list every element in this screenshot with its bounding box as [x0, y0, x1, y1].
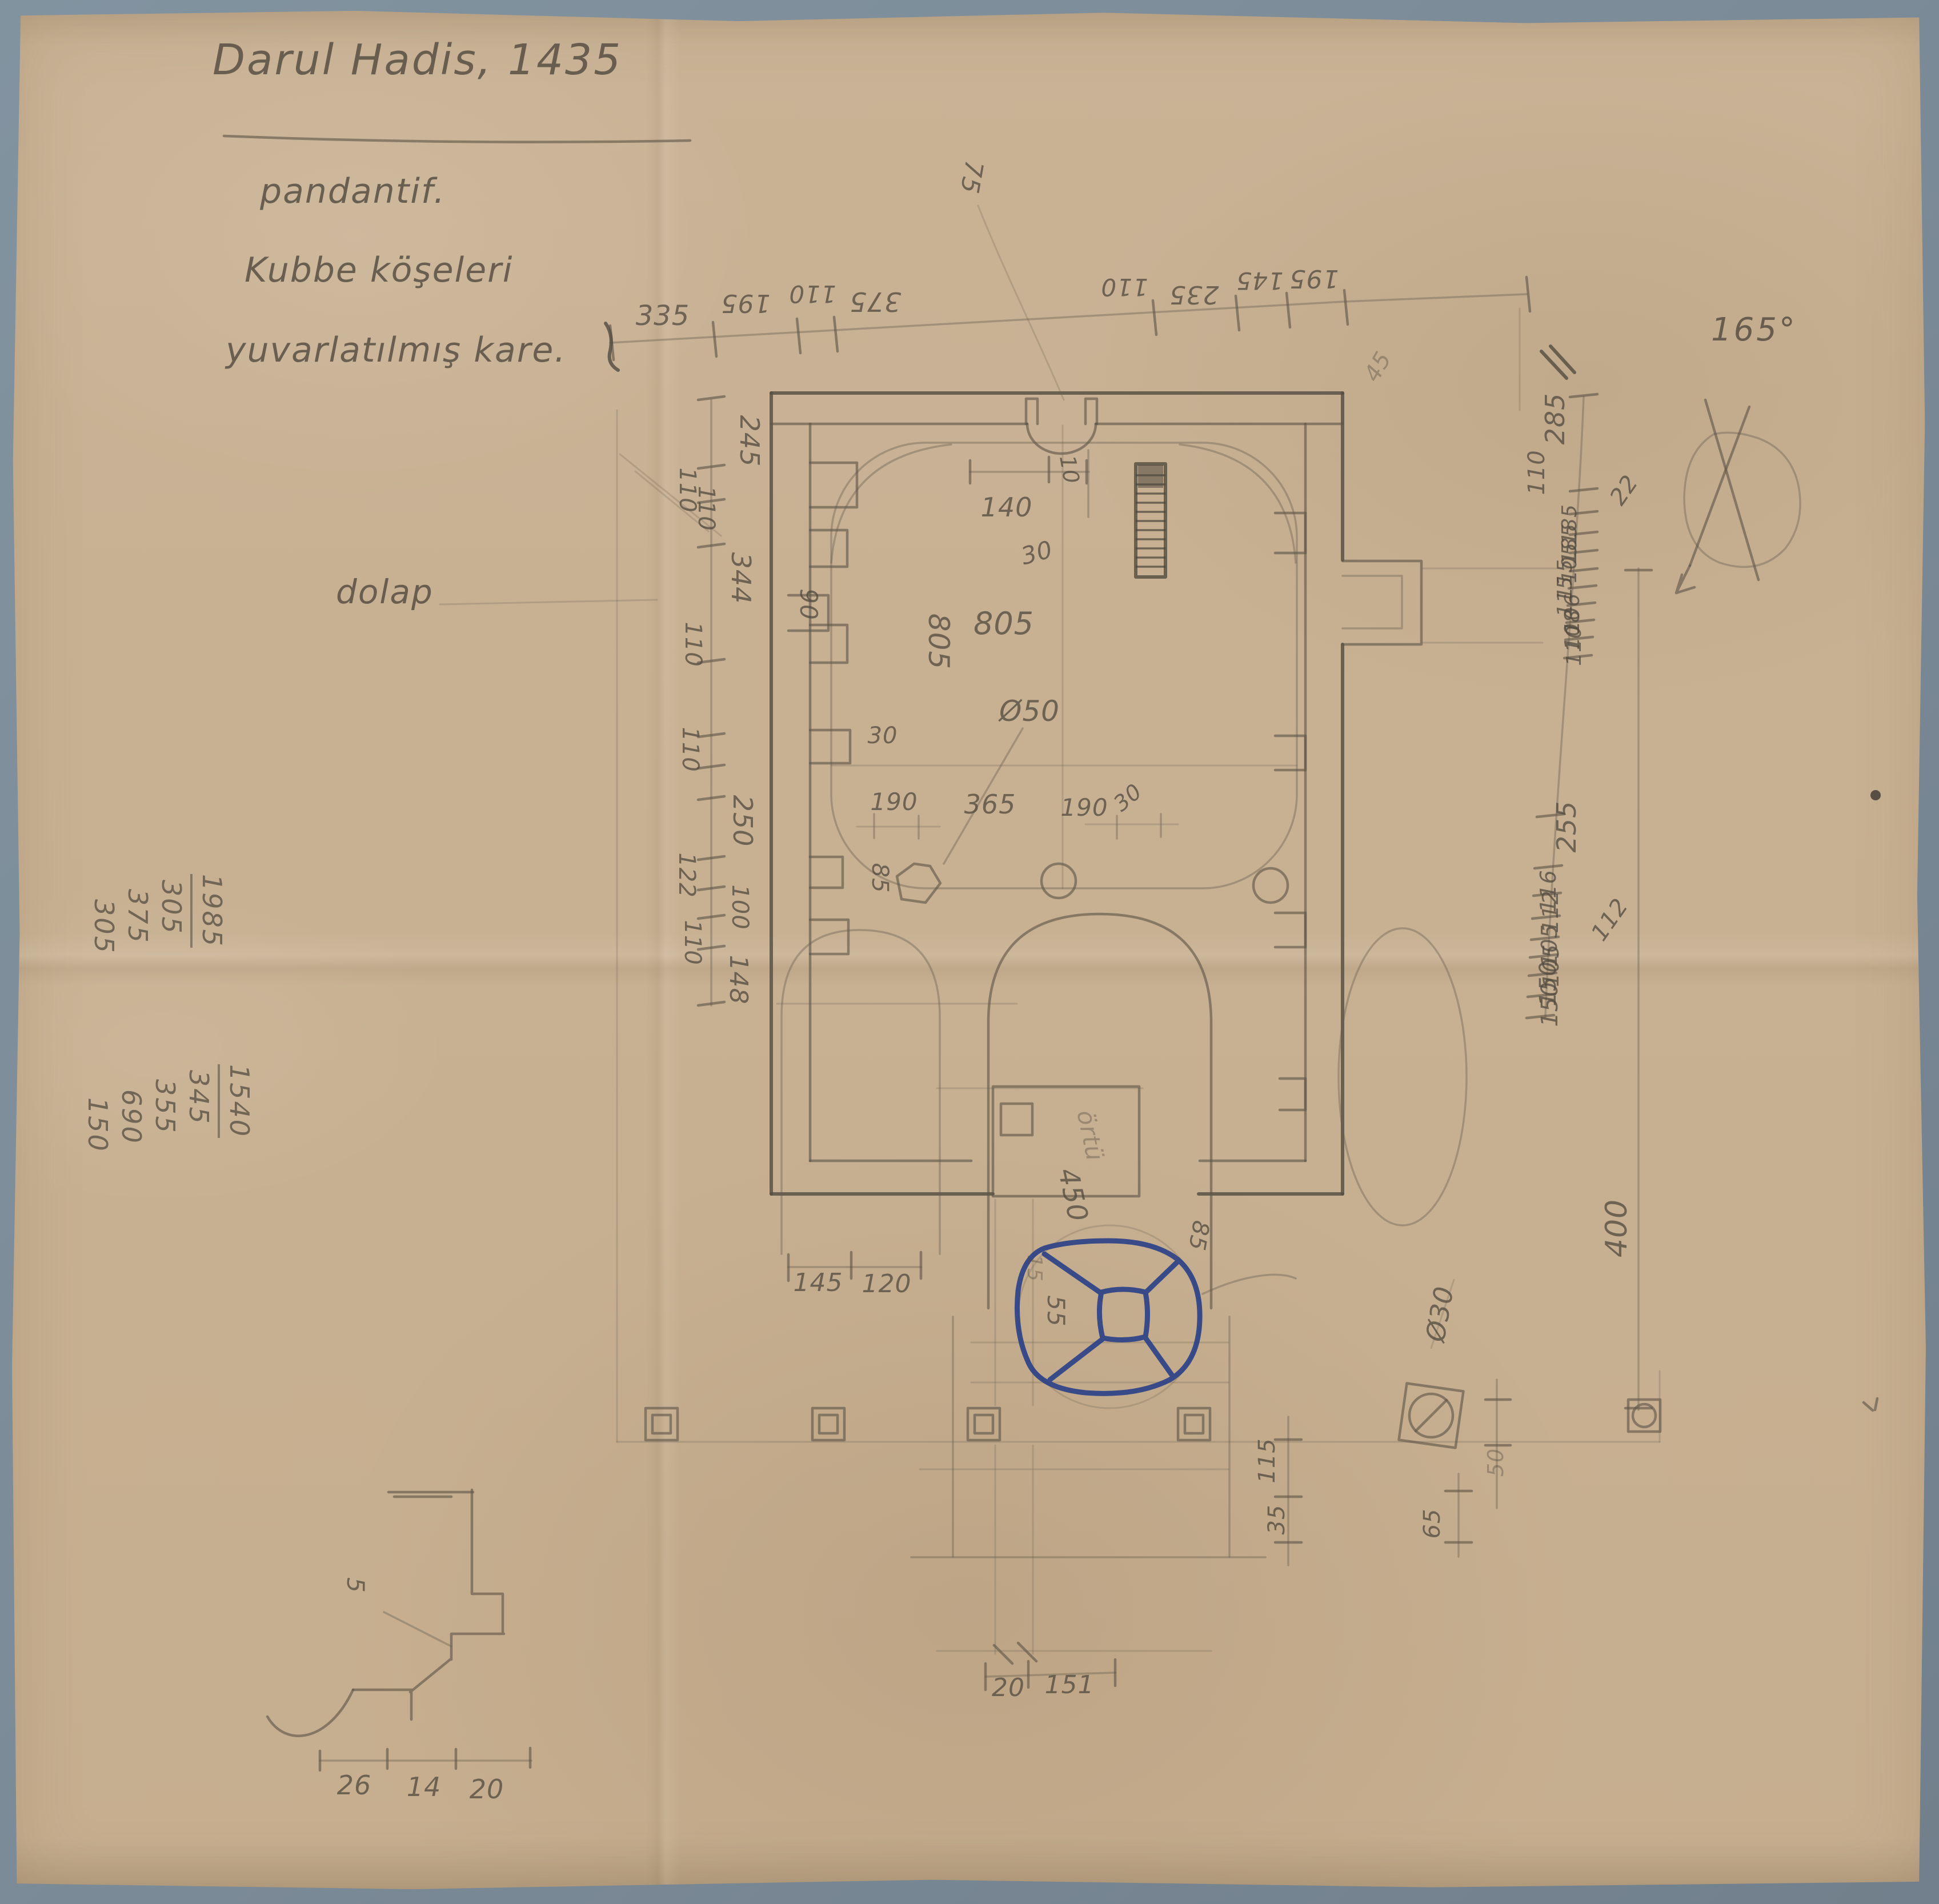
lower-dim: 145	[794, 1270, 843, 1296]
molding-detail: 5	[343, 1577, 367, 1593]
plan-label: 190	[1060, 796, 1108, 820]
calc-value: 690	[115, 1089, 149, 1145]
right-chain: 110	[1525, 450, 1548, 495]
top-chain: 375	[850, 288, 902, 315]
top-chain: 75	[956, 159, 986, 196]
plan-label: 190	[870, 790, 918, 814]
angle-note: 165°	[1711, 311, 1797, 348]
calc-value: 345	[182, 1070, 215, 1125]
lower-dim: 20	[992, 1675, 1025, 1701]
lower-dim: 65	[1421, 1509, 1444, 1539]
plan-label: 10	[1056, 454, 1083, 486]
molding-detail: 14	[407, 1774, 442, 1800]
right-chain: 400	[1602, 1199, 1632, 1257]
top-chain: 195	[1289, 266, 1339, 291]
lower-dim: 120	[862, 1272, 912, 1297]
scanned-sketch-page: { "document": { "title": "Darul Hadis, 1…	[0, 0, 1939, 1904]
left-chain: 90	[796, 588, 820, 620]
calc-total: 1540	[218, 1064, 256, 1138]
plan-label: 365	[964, 791, 1016, 817]
left-chain: 250	[730, 795, 756, 847]
top-chain: 195	[721, 290, 771, 315]
top-chain: 235	[1169, 282, 1219, 307]
right-chain: 110	[1564, 625, 1585, 666]
calc-total: 1985	[190, 874, 229, 948]
plan-label: 85	[868, 863, 891, 893]
pendentive-detail: 55	[1044, 1295, 1068, 1326]
note-kubbe: Kubbe köşeleri	[245, 250, 513, 290]
note-pandantif: pandantif.	[260, 171, 446, 211]
plan-label: 85	[1185, 1218, 1213, 1252]
plan-label: Ø50	[999, 697, 1060, 725]
top-chain: 110	[1100, 275, 1148, 299]
left-chain: 110	[682, 622, 704, 667]
note-kare: yuvarlatılmış kare.	[226, 330, 566, 370]
calc-value: 305	[87, 899, 121, 955]
top-chain: 335	[636, 302, 690, 330]
plan-label: 140	[981, 494, 1033, 520]
molding-detail: 26	[337, 1772, 372, 1798]
lower-dim: 50	[1485, 1448, 1507, 1477]
left-chain: 110	[681, 920, 704, 965]
left-chain: 245	[736, 415, 763, 467]
left-chain: 110	[679, 727, 702, 772]
left-chain: 100	[728, 884, 751, 929]
calc-value: 375	[121, 889, 154, 944]
left-chain: 110	[695, 486, 718, 531]
lower-dim: 35	[1265, 1505, 1288, 1535]
calculation-column-1: 1985305375305	[63, 874, 229, 1057]
left-chain: 122	[675, 852, 698, 897]
right-chain: 255	[1553, 801, 1580, 853]
calc-value: 305	[154, 880, 188, 935]
molding-detail: 20	[470, 1776, 504, 1802]
right-chain: 150	[1539, 981, 1561, 1027]
lower-dim: 115	[1256, 1438, 1279, 1483]
calc-value: 355	[148, 1079, 182, 1135]
calculation-column-2: 1540345355690150	[75, 1064, 256, 1247]
plan-label: 805	[924, 614, 953, 670]
pendentive-detail: 15	[1024, 1254, 1044, 1282]
plan-label: 30	[868, 724, 898, 747]
page-title: Darul Hadis, 1435	[213, 35, 622, 85]
plan-label: 805	[973, 608, 1034, 639]
top-chain: 110	[788, 282, 836, 306]
lower-dim: 151	[1045, 1673, 1095, 1698]
right-chain: 285	[1542, 393, 1568, 445]
left-chain: 344	[728, 552, 754, 604]
top-chain: 145	[1236, 268, 1283, 292]
kraft-paper-sheet	[9, 8, 1929, 1895]
cupboard-label: dolap	[336, 572, 434, 611]
calc-value: 150	[81, 1097, 115, 1153]
left-chain: 148	[726, 955, 751, 1005]
